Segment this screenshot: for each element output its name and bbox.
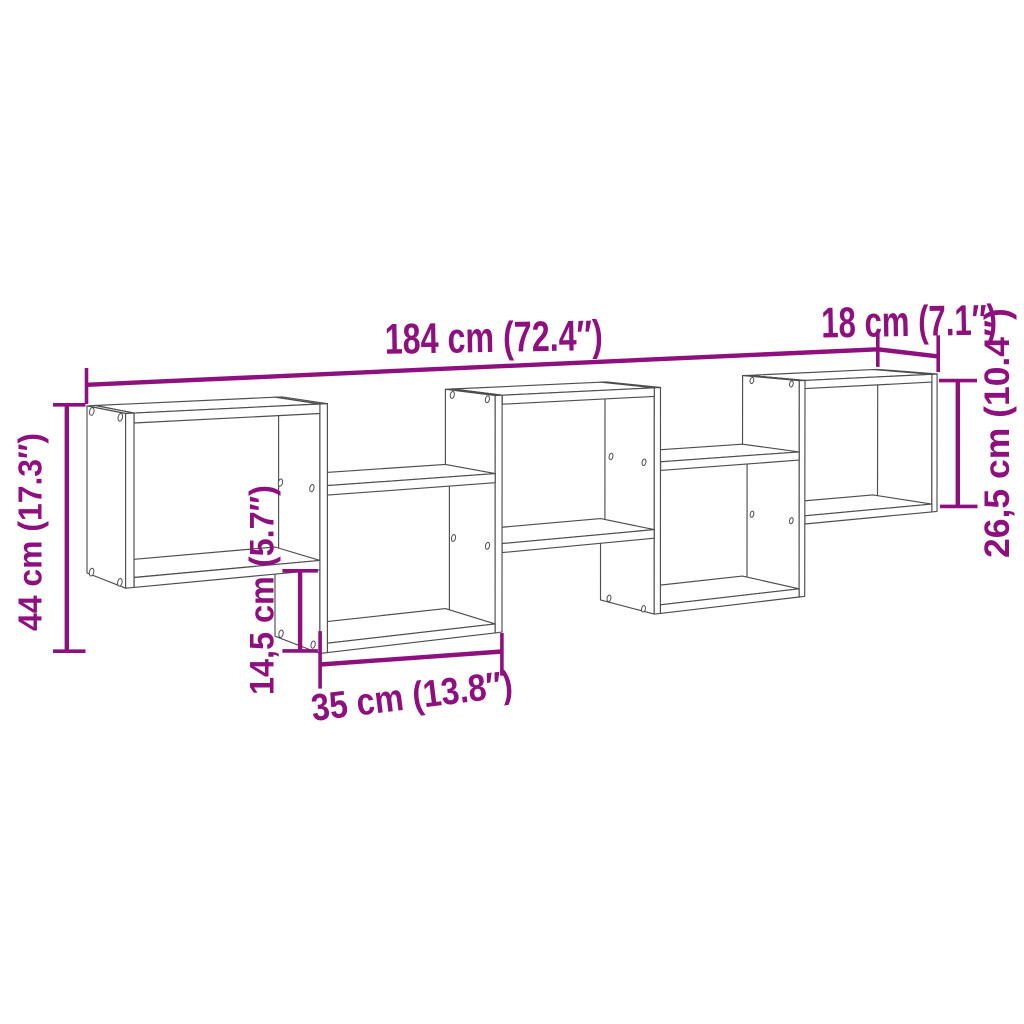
svg-text:44 cm (17.3″): 44 cm (17.3″) bbox=[12, 433, 49, 631]
svg-text:18 cm (7.1″): 18 cm (7.1″) bbox=[821, 295, 998, 346]
svg-text:14,5 cm (5.7″): 14,5 cm (5.7″) bbox=[244, 485, 282, 695]
svg-text:26,5 cm (10.4″): 26,5 cm (10.4″) bbox=[977, 308, 1017, 558]
svg-text:184 cm (72.4″): 184 cm (72.4″) bbox=[384, 313, 603, 364]
